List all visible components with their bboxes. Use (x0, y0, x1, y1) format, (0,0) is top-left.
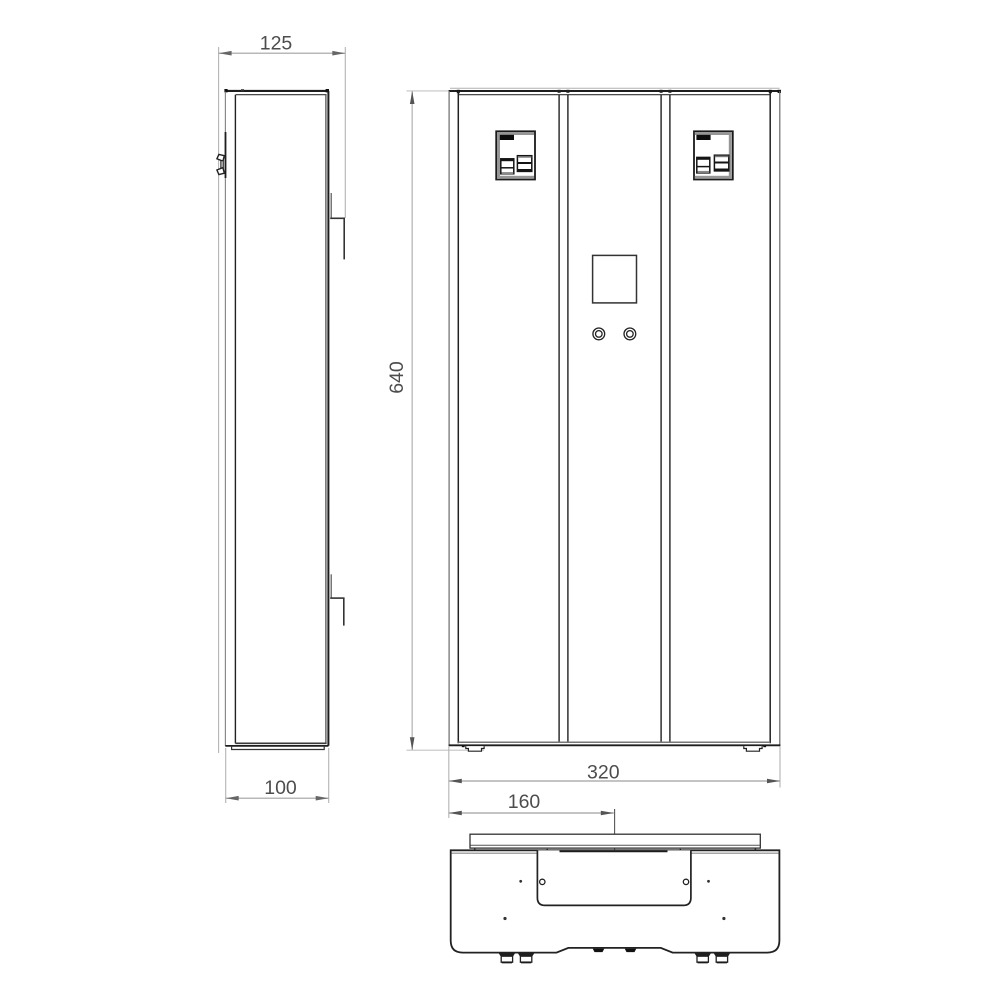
svg-text:320: 320 (587, 762, 620, 784)
svg-text:640: 640 (386, 361, 408, 394)
svg-text:125: 125 (260, 33, 293, 55)
svg-text:100: 100 (264, 777, 297, 799)
svg-text:160: 160 (508, 791, 541, 813)
